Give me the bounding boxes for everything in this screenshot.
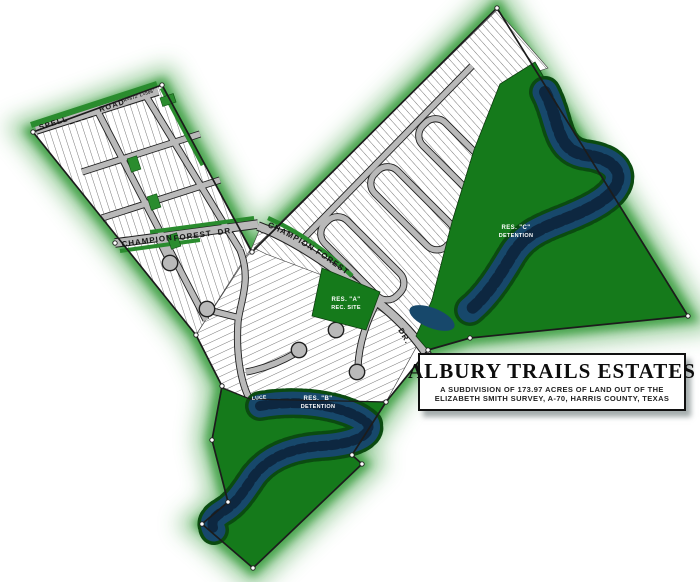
reserve-a-label: RES. "A"	[332, 297, 361, 303]
plat-subtitle-line1: A SUBDIVISION OF 173.97 ACRES OF LAND OU…	[440, 385, 664, 394]
plat-subtitle-line2: ELIZABETH SMITH SURVEY, A-70, HARRIS COU…	[435, 394, 670, 403]
reserve-a-sublabel: REC. SITE	[331, 305, 361, 311]
reserve-b-label: RES. "B"	[304, 396, 333, 402]
title-block: ALBURY TRAILS ESTATES A SUBDIVISION OF 1…	[418, 353, 686, 411]
plat-map-page: SPELL ROAD R=672' L=506' CHAMPION FOREST…	[0, 0, 700, 582]
reserve-b-sublabel: DETENTION	[301, 404, 335, 410]
reserve-c-sublabel: DETENTION	[499, 233, 533, 239]
plat-map-svg: SPELL ROAD R=672' L=506' CHAMPION FOREST…	[0, 0, 700, 582]
reserve-c-label: RES. "C"	[502, 225, 531, 231]
plat-title: ALBURY TRAILS ESTATES	[408, 361, 696, 382]
